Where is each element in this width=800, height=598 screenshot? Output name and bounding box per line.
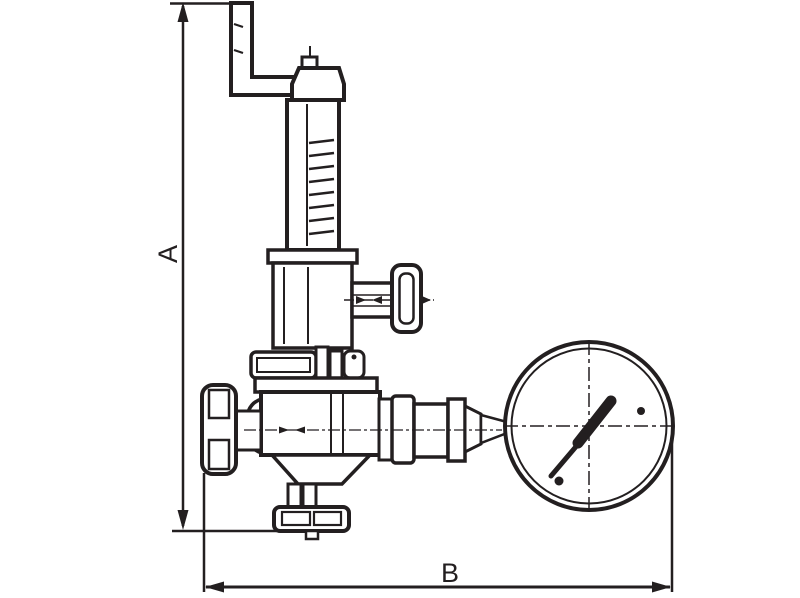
- bonnet-cap-icon: [292, 46, 344, 100]
- valve-technical-drawing: A B: [0, 0, 800, 598]
- spring-housing-icon: [287, 100, 339, 250]
- adjuster-body-icon: [268, 250, 357, 348]
- dimension-a-label: A: [153, 245, 183, 263]
- bottom-outlet-icon: [172, 484, 349, 539]
- side-tap-icon: [344, 265, 434, 332]
- drawing-canvas: A B: [0, 0, 800, 598]
- arrow-right-icon: [652, 582, 671, 593]
- gauge-screw-dot: [637, 407, 645, 415]
- inlet-pipe-elbow-icon: [231, 3, 298, 95]
- gauge-screw-dot: [555, 477, 564, 486]
- arrow-down-icon: [178, 510, 189, 530]
- pressure-gauge-icon: [504, 341, 674, 511]
- arrow-up-icon: [178, 2, 189, 22]
- mid-flange-icon: [251, 347, 377, 392]
- arrow-left-icon: [205, 582, 224, 593]
- dimension-b-label: B: [441, 558, 459, 588]
- valve-body-icon: [246, 392, 380, 484]
